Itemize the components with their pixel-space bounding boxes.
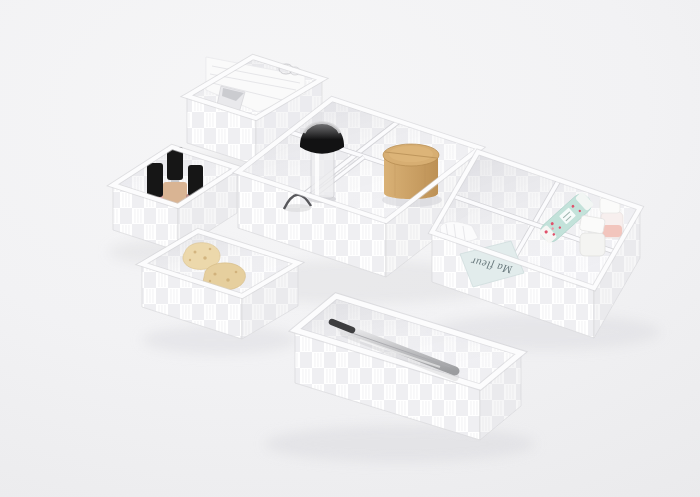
nail-polish-cap [147, 163, 163, 197]
pore [235, 271, 238, 274]
travel-bottle-front [579, 215, 605, 256]
pore [203, 256, 207, 260]
pore [213, 272, 216, 275]
pore [189, 259, 191, 261]
pore [226, 278, 230, 282]
brush-handle [311, 150, 334, 198]
brush-handle-highlight [315, 152, 319, 196]
bottle-liquid [602, 225, 622, 237]
pore [194, 251, 197, 254]
shadow [265, 426, 535, 462]
basket-sponges [142, 231, 298, 339]
pore [209, 280, 211, 282]
photo-stage: Ma fleur [0, 0, 700, 497]
organizer-tray-right: Ma fleur [432, 152, 640, 338]
bottle-body [580, 233, 605, 256]
organizer-baskets-photo: Ma fleur [0, 0, 700, 497]
bamboo-lid-highlight [389, 146, 433, 162]
pore [209, 248, 212, 251]
